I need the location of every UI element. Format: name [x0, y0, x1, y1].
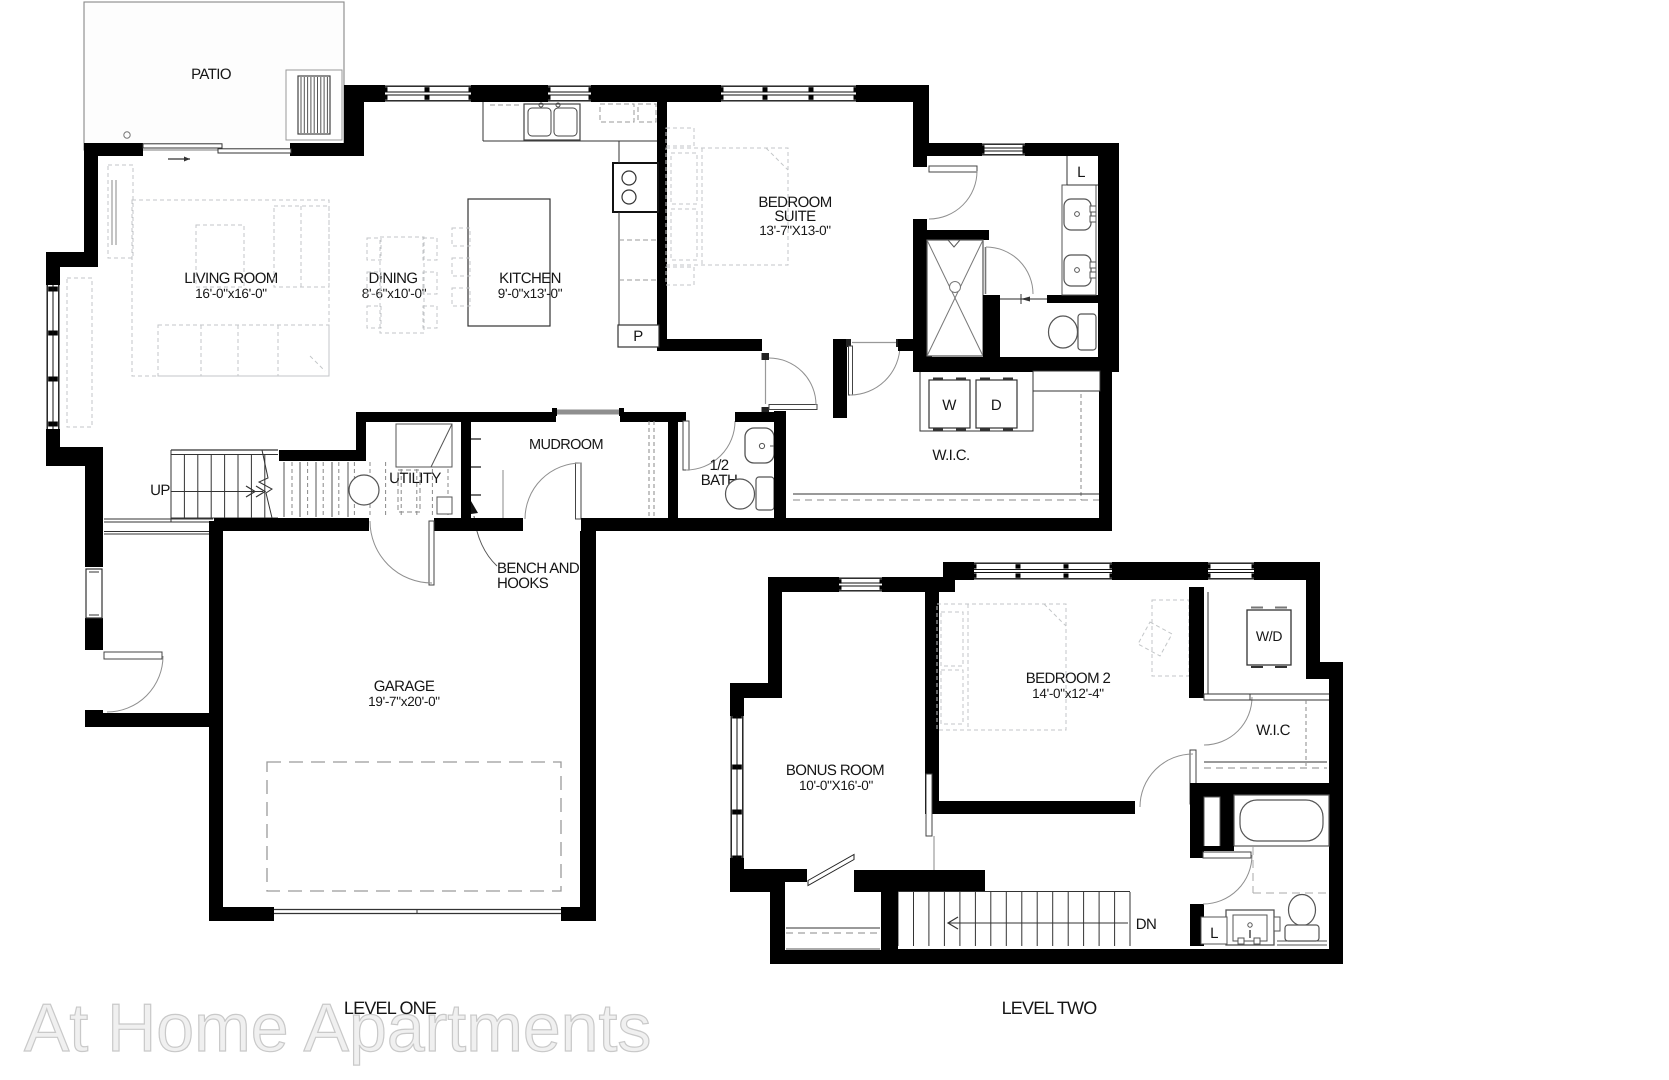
svg-text:DINING: DINING [369, 270, 418, 287]
svg-text:LIVING ROOM: LIVING ROOM [184, 270, 278, 287]
svg-text:10'-0"X16'-0": 10'-0"X16'-0" [799, 778, 873, 793]
svg-text:L: L [1077, 164, 1085, 181]
svg-text:W.I.C: W.I.C [1256, 722, 1290, 739]
svg-text:13'-7"X13-0": 13'-7"X13-0" [759, 223, 831, 238]
svg-text:KITCHEN: KITCHEN [499, 270, 561, 287]
svg-text:W.I.C.: W.I.C. [932, 447, 969, 464]
svg-text:BONUS ROOM: BONUS ROOM [786, 762, 884, 779]
svg-text:P: P [633, 328, 643, 345]
svg-text:At Home Apartments: At Home Apartments [24, 990, 651, 1066]
svg-text:L: L [1210, 925, 1218, 942]
svg-text:LEVEL ONE: LEVEL ONE [344, 998, 437, 1018]
svg-text:W/D: W/D [1256, 628, 1283, 644]
svg-text:16'-0"x16'-0": 16'-0"x16'-0" [195, 286, 267, 301]
svg-text:GARAGE: GARAGE [374, 678, 435, 695]
svg-text:UTILITY: UTILITY [389, 470, 441, 487]
svg-text:PATIO: PATIO [191, 66, 231, 83]
svg-text:LEVEL TWO: LEVEL TWO [1002, 998, 1098, 1018]
svg-text:14'-0"x12'-4": 14'-0"x12'-4" [1032, 686, 1104, 701]
svg-text:D: D [991, 397, 1002, 414]
svg-text:W: W [942, 397, 957, 414]
svg-text:MUDROOM: MUDROOM [529, 437, 603, 453]
svg-text:DN: DN [1136, 916, 1156, 933]
svg-text:UP: UP [150, 482, 170, 499]
svg-text:19'-7"x20'-0": 19'-7"x20'-0" [368, 694, 440, 709]
svg-text:9'-0"x13'-0": 9'-0"x13'-0" [498, 286, 563, 301]
svg-text:BEDROOM 2: BEDROOM 2 [1026, 670, 1111, 687]
svg-text:HOOKS: HOOKS [497, 575, 549, 592]
